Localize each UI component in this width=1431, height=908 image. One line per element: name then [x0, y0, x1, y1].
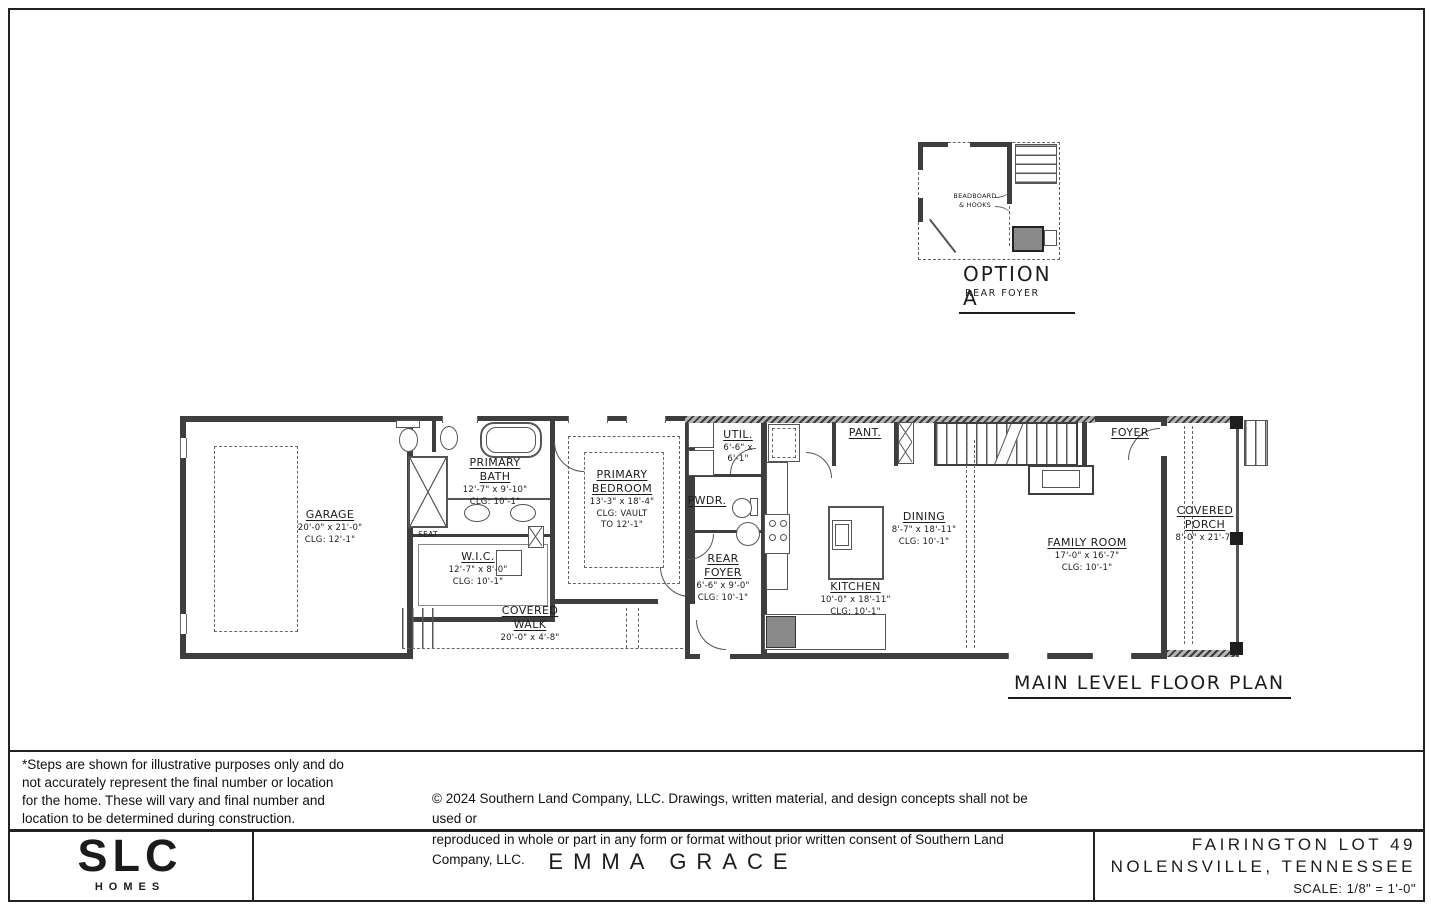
- window: [1008, 653, 1048, 659]
- porch-post: [1230, 642, 1243, 655]
- front-steps-icon: [1244, 420, 1268, 466]
- room-label-dining: DINING 8'-7" x 18'-11" CLG: 10'-1": [880, 510, 968, 548]
- closet-x-glyph: [899, 423, 912, 462]
- room-ceiling: CLG: 10'-1": [880, 537, 968, 548]
- wall: [432, 416, 436, 452]
- title-block-divider: [1093, 829, 1095, 900]
- project-line1: FAIRINGTON LOT 49: [1100, 834, 1416, 856]
- room-dims: 6'-6" x 9'-0": [682, 581, 764, 592]
- room-dims: 17'-0" x 16'-7": [1023, 551, 1151, 562]
- wall: [1007, 142, 1012, 204]
- main-floor-plan: GARAGE 20'-0" x 21'-0" CLG: 12'-1" SEAT …: [180, 410, 1275, 668]
- post-line-dashed: [626, 608, 627, 648]
- seat-label: SEAT: [406, 530, 450, 539]
- drawing-scale: SCALE: 1/8" = 1'-0": [1100, 881, 1416, 896]
- stairs-detail: [1015, 144, 1057, 184]
- wall: [1082, 422, 1087, 466]
- linen-cabinet: [528, 526, 544, 548]
- toilet-icon: [399, 428, 418, 452]
- plan-name-title: EMMA GRACE: [254, 849, 1092, 875]
- cabinet-x-glyph: [529, 527, 542, 546]
- logo-brand: SLC: [8, 832, 252, 879]
- sink-icon: [736, 522, 760, 546]
- range-icon: [764, 514, 790, 554]
- burner-icon: [780, 520, 787, 527]
- room-dims: 8'-0" x 21'-7": [1168, 533, 1242, 544]
- room-name: PWDR.: [684, 494, 730, 508]
- room-label-garage: GARAGE 20'-0" x 21'-0" CLG: 12'-1": [270, 508, 390, 546]
- wall: [970, 142, 1012, 147]
- dryer-icon: [688, 450, 714, 476]
- steps-disclaimer: *Steps are shown for illustrative purpos…: [22, 756, 352, 828]
- toilet-tank: [396, 420, 420, 428]
- room-name: COVERED PORCH: [1168, 504, 1242, 532]
- porch-edge-hatch: [1167, 416, 1239, 423]
- room-label-pant: PANT.: [836, 426, 894, 440]
- room-ceiling: CLG: 12'-1": [270, 535, 390, 546]
- room-dims: 20'-0" x 21'-0": [270, 523, 390, 534]
- room-ceiling: CLG: VAULT TO 12'-1": [572, 509, 672, 531]
- room-dims: 20'-0" x 4'-8": [480, 633, 580, 644]
- room-name: KITCHEN: [798, 580, 913, 594]
- stairs-icon: [934, 422, 1078, 466]
- burner-icon: [769, 520, 776, 527]
- divider-line: [8, 750, 1423, 752]
- burner-icon: [769, 534, 776, 541]
- window: [626, 416, 666, 423]
- room-name: COVERED WALK: [480, 604, 580, 632]
- room-label-primary-bath: PRIMARY BATH 12'-7" x 9'-10" CLG: 10'-1": [430, 456, 560, 508]
- walk-edge-dashed: [402, 648, 688, 650]
- room-dims: 13'-3" x 18'-4": [572, 497, 672, 508]
- washer-icon: [688, 422, 714, 448]
- entry-door-opening: [700, 654, 730, 659]
- plan-title: MAIN LEVEL FLOOR PLAN: [1008, 672, 1291, 699]
- refrigerator-dashed: [772, 428, 796, 458]
- bathtub-inner: [486, 427, 536, 453]
- fireplace-firebox: [1042, 470, 1080, 488]
- room-label-foyer: FOYER: [1100, 426, 1160, 440]
- room-name: GARAGE: [270, 508, 390, 522]
- wall: [918, 142, 923, 170]
- door-opening: [180, 438, 187, 458]
- option-a-detail: BEADBOARD & HOOKS OPTION A REAR FOYER: [915, 140, 1075, 310]
- room-name: W.I.C.: [424, 550, 532, 564]
- window: [568, 416, 608, 423]
- room-label-covered-porch: COVERED PORCH 8'-0" x 21'-7": [1168, 504, 1242, 544]
- bench: [1012, 226, 1044, 252]
- front-door-opening: [1161, 426, 1167, 456]
- broom-closet: [898, 422, 914, 464]
- room-ceiling: CLG: 10'-1": [798, 607, 913, 618]
- room-name: DINING: [880, 510, 968, 524]
- project-info: FAIRINGTON LOT 49 NOLENSVILLE, TENNESSEE…: [1100, 834, 1416, 896]
- room-dims: 10'-0" x 18'-11": [798, 595, 913, 606]
- room-dims: 12'-7" x 8'-0": [424, 565, 532, 576]
- room-name: UTIL.: [714, 428, 762, 442]
- drawing-sheet: BEADBOARD & HOOKS OPTION A REAR FOYER GA…: [0, 0, 1431, 908]
- builder-logo: SLC HOMES: [8, 832, 252, 900]
- porch-edge-hatch: [1167, 650, 1239, 657]
- room-label-covered-walk: COVERED WALK 20'-0" x 4'-8": [480, 604, 580, 644]
- room-name: PANT.: [836, 426, 894, 440]
- room-name: REAR FOYER: [682, 552, 764, 580]
- room-label-primary-bedroom: PRIMARY BEDROOM 13'-3" x 18'-4" CLG: VAU…: [572, 468, 672, 531]
- toilet-icon: [732, 498, 752, 518]
- room-ceiling: CLG: 10'-1": [424, 577, 532, 588]
- door-opening: [180, 614, 187, 634]
- room-label-wic: W.I.C. 12'-7" x 8'-0" CLG: 10'-1": [424, 550, 532, 588]
- post-line-dashed: [638, 608, 639, 648]
- room-label-family-room: FAMILY ROOM 17'-0" x 16'-7" CLG: 10'-1": [1023, 536, 1151, 574]
- window: [1092, 653, 1132, 659]
- option-subtitle: REAR FOYER: [965, 288, 1040, 299]
- room-name: PRIMARY BATH: [430, 456, 560, 484]
- island-sink-basin: [835, 524, 849, 546]
- room-dims: 6'-6" x 6'-1": [714, 443, 762, 465]
- burner-icon: [780, 534, 787, 541]
- room-name: PRIMARY BEDROOM: [572, 468, 672, 496]
- room-label-pwdr: PWDR.: [684, 494, 730, 508]
- steps-icon: [402, 608, 438, 648]
- room-label-rear-foyer: REAR FOYER 6'-6" x 9'-0" CLG: 10'-1": [682, 552, 764, 604]
- logo-sub: HOMES: [8, 881, 252, 893]
- sink-icon: [440, 426, 458, 450]
- beam-line-dashed: [974, 440, 975, 648]
- room-label-util: UTIL. 6'-6" x 6'-1": [714, 428, 762, 465]
- cubby: [1044, 230, 1057, 246]
- room-name: FAMILY ROOM: [1023, 536, 1151, 550]
- room-ceiling: CLG: 10'-1": [682, 593, 764, 604]
- porch-post: [1230, 416, 1243, 429]
- stair-break-line: [992, 422, 1024, 466]
- room-dims: 12'-7" x 9'-10": [430, 485, 560, 496]
- room-name: FOYER: [1100, 426, 1160, 440]
- room-ceiling: CLG: 10'-1": [1023, 563, 1151, 574]
- project-line2: NOLENSVILLE, TENNESSEE: [1100, 856, 1416, 878]
- room-label-kitchen: KITCHEN 10'-0" x 18'-11" CLG: 10'-1": [798, 580, 913, 618]
- bench-cubbies: [766, 616, 796, 648]
- wall: [918, 198, 923, 222]
- room-dims: 8'-7" x 18'-11": [880, 525, 968, 536]
- window: [442, 416, 478, 423]
- room-ceiling: CLG: 10'-1": [430, 497, 560, 508]
